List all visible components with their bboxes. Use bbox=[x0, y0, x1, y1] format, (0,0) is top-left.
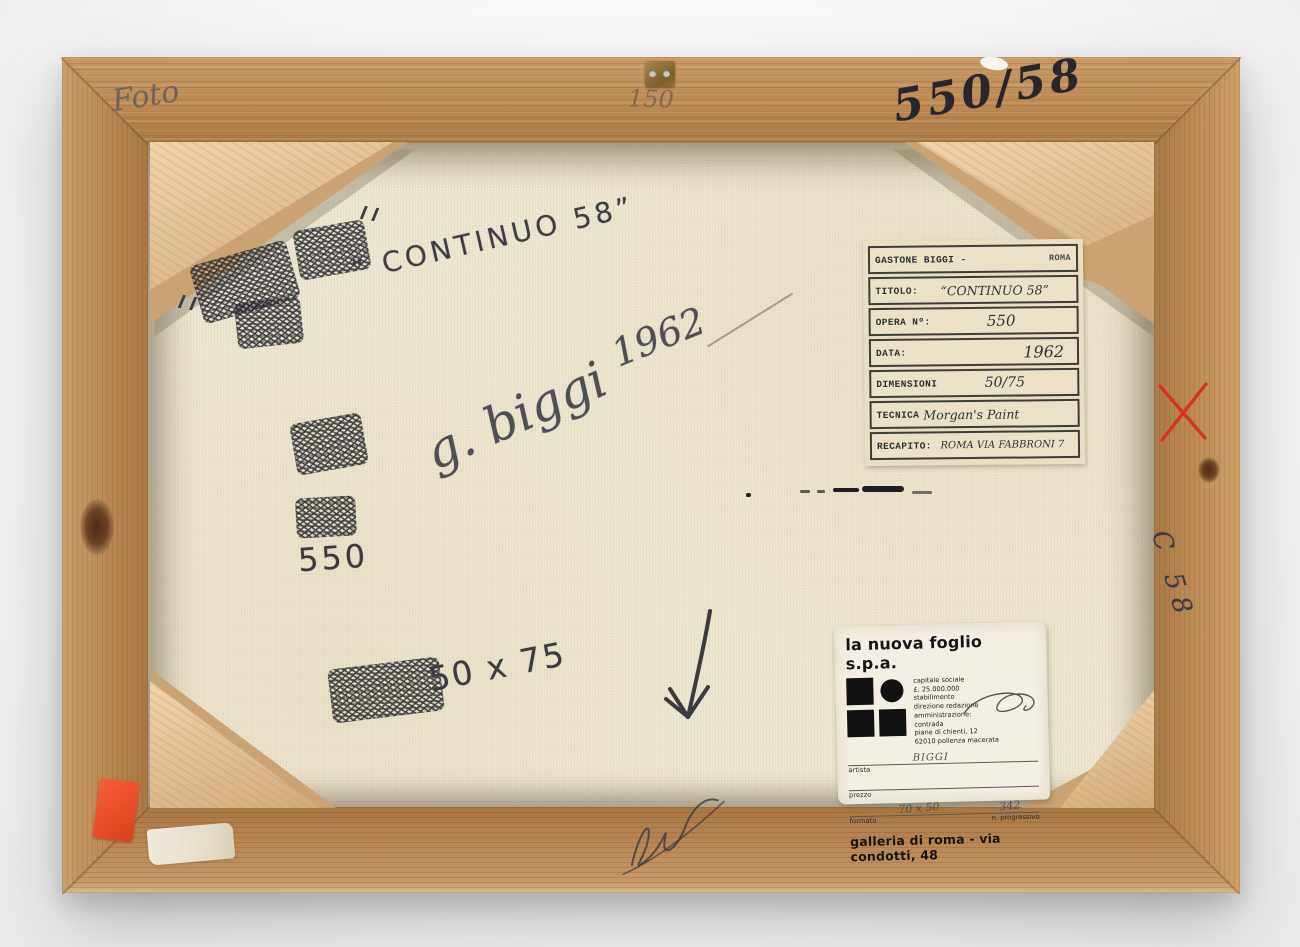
wood-knot-left bbox=[80, 499, 114, 555]
red-x-mark bbox=[1155, 379, 1211, 445]
one-fifty-pencil-inscription: 150 bbox=[628, 84, 675, 114]
wood-knot-right bbox=[1198, 457, 1220, 483]
hanging-bracket bbox=[645, 61, 675, 87]
logo-square-icon bbox=[846, 678, 874, 706]
opera-number-inscription: 550 bbox=[297, 537, 370, 580]
label-row-titolo: TITOLO: “CONTINUO 58” bbox=[868, 275, 1078, 305]
label-artist-name: GASTONE BIGGI - bbox=[875, 254, 967, 266]
frame-rail-right bbox=[1154, 57, 1240, 893]
frame-rail-left bbox=[62, 57, 148, 893]
label-value-data: 1962 bbox=[906, 341, 1072, 362]
artista-label-text: artista bbox=[848, 766, 870, 773]
label-value-titolo: “CONTINUO 58” bbox=[918, 281, 1071, 298]
orange-sticker bbox=[92, 778, 139, 842]
ink-dot bbox=[746, 493, 751, 497]
label-row-data: DATA: 1962 bbox=[869, 337, 1079, 367]
progressivo-label-text: n. progressivo bbox=[991, 814, 1039, 822]
typed-gallery-label: GASTONE BIGGI - ROMA TITOLO: “CONTINUO 5… bbox=[863, 239, 1085, 466]
arrow-down-icon bbox=[650, 609, 740, 744]
crossed-out-mark-3 bbox=[234, 297, 304, 350]
ink-dash-5 bbox=[912, 491, 932, 494]
publisher-name: la nuova foglio s.p.a. bbox=[845, 631, 1036, 674]
label-header-row: GASTONE BIGGI - ROMA bbox=[868, 244, 1078, 274]
torn-paper-tape bbox=[147, 822, 236, 865]
label-value-dimensioni: 50/75 bbox=[937, 374, 1072, 391]
publisher-logo-icon bbox=[846, 677, 907, 748]
label-value-recapito: ROMA VIA FABBRONI 7 bbox=[932, 438, 1073, 450]
label-row-recapito: RECAPITO: ROMA VIA FABBRONI 7 bbox=[870, 430, 1080, 460]
bottom-signature-scribble bbox=[610, 793, 735, 875]
logo-square-icon bbox=[847, 710, 875, 738]
label-value-tecnica: Morgan's Paint bbox=[919, 405, 1072, 422]
formato-handwritten-value: 70 x 50 bbox=[898, 800, 940, 816]
label-key-data: DATA: bbox=[876, 347, 907, 358]
gallery-address: galleria di roma - via condotti, 48 bbox=[850, 830, 1041, 865]
ink-dash-1 bbox=[800, 490, 810, 493]
label-value-opera: 550 bbox=[931, 311, 1072, 330]
label-city: ROMA bbox=[1049, 253, 1071, 263]
label-row-dimensioni: DIMENSIONI 50/75 bbox=[869, 368, 1079, 398]
label-row-opera: OPERA Nº: 550 bbox=[869, 306, 1079, 336]
bracket-screw-left bbox=[649, 70, 656, 77]
label-key-dimensioni: DIMENSIONI bbox=[876, 378, 937, 390]
ink-dash-2 bbox=[817, 490, 825, 493]
label-key-titolo: TITOLO: bbox=[875, 285, 918, 296]
logo-circle-icon bbox=[880, 679, 904, 703]
artista-handwritten-value: BIGGI bbox=[913, 751, 949, 763]
bracket-screw-right bbox=[663, 70, 670, 77]
label-row-tecnica: TECNICA Morgan's Paint bbox=[870, 399, 1080, 429]
dealer-signature-scribble bbox=[959, 686, 1040, 722]
logo-square-icon bbox=[879, 709, 907, 737]
crossed-out-mark-4 bbox=[295, 495, 357, 538]
label-key-tecnica: TECNICA bbox=[877, 409, 920, 420]
prezzo-label-text: prezzo bbox=[849, 792, 872, 799]
label-key-opera: OPERA Nº: bbox=[876, 316, 931, 328]
printed-publisher-label: la nuova foglio s.p.a. capitale sociale … bbox=[834, 621, 1050, 804]
label-key-recapito: RECAPITO: bbox=[877, 440, 932, 452]
artwork-back-photo: Foto 150 550/58 “ CONTINUO 58” g. biggi … bbox=[62, 57, 1240, 893]
photo-backdrop: Foto 150 550/58 “ CONTINUO 58” g. biggi … bbox=[0, 0, 1300, 947]
ink-dash-4 bbox=[862, 486, 904, 492]
formato-label-text: formato bbox=[850, 818, 877, 825]
detail-line: 62010 pollenza macerata bbox=[915, 736, 999, 747]
ink-dash-3 bbox=[833, 488, 859, 492]
progressivo-handwritten-value: 342 bbox=[999, 799, 1021, 814]
